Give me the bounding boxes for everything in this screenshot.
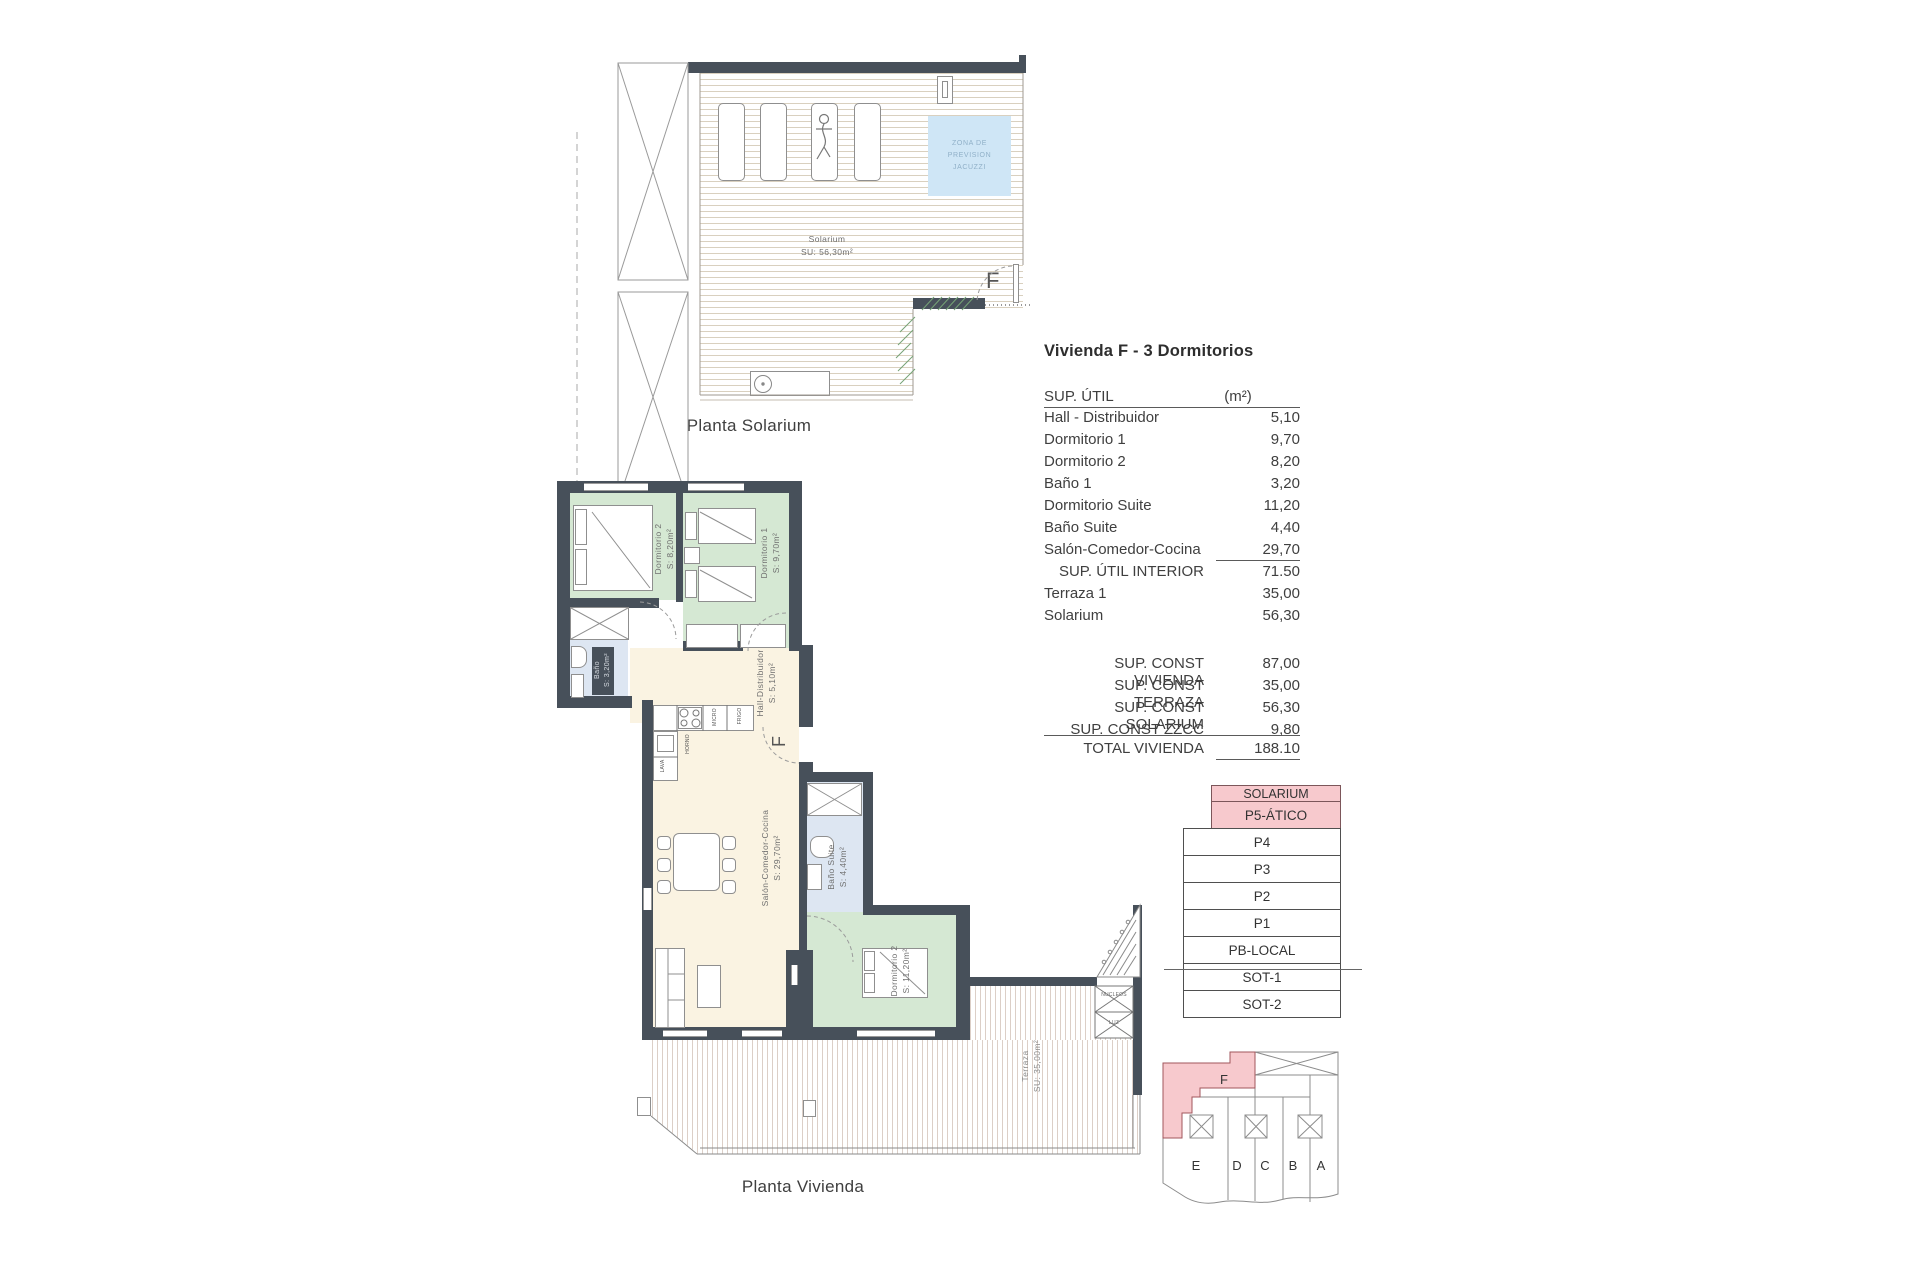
key-plan-letter-c: C — [1260, 1158, 1269, 1173]
room-area: S: 29,70m² — [771, 835, 783, 881]
table-row: Solarium56,30 — [1044, 607, 1300, 627]
stack-row-solarium: SOLARIUM — [1211, 785, 1341, 802]
table-row: Terraza 135,00 — [1044, 585, 1300, 605]
row-label: SUP. CONST ZZCC — [1044, 721, 1216, 741]
totals-rule — [1044, 735, 1300, 736]
key-plan-letter-e: E — [1192, 1158, 1201, 1173]
label-bano-suite: Baño Suite S: 4,40m² — [824, 812, 850, 922]
room-area: SU: 35,00m² — [1031, 1040, 1043, 1092]
stack-row-p3: P3 — [1183, 855, 1341, 883]
area-table: Vivienda F - 3 Dormitorios SUP. ÚTIL (m²… — [1044, 342, 1300, 782]
table-row: Dormitorio Suite11,20 — [1044, 497, 1300, 517]
row-value: 8,20 — [1216, 453, 1300, 473]
room-name: Baño Suite — [825, 844, 837, 890]
appliance-label: HORNO — [685, 734, 692, 754]
table-row-const: SUP. CONST SOLARIUM56,30 — [1044, 699, 1300, 719]
room-area: S: 9,70m² — [770, 533, 782, 573]
row-label: Baño 1 — [1044, 475, 1216, 495]
label-luz: LUZ — [1097, 1020, 1131, 1026]
key-plan-letter-b: B — [1289, 1158, 1298, 1173]
core-label: LUZ — [1109, 1020, 1119, 1026]
room-name: Terraza — [1019, 1050, 1031, 1081]
row-value: 56,30 — [1216, 699, 1300, 719]
label-dormitorio2: Dormitorio 2 S: 8,20m² — [651, 494, 677, 604]
row-value: 87,00 — [1216, 655, 1300, 675]
table-row-const: SUP. CONST VIVIENDA87,00 — [1044, 655, 1300, 675]
room-name: Dormitorio 1 — [758, 527, 770, 578]
row-value: 3,20 — [1216, 475, 1300, 495]
row-label: Dormitorio 2 — [1044, 453, 1216, 473]
room-name: Hall-Distribuidor — [754, 649, 766, 716]
key-plan-lift-cores — [1190, 1115, 1322, 1138]
stack-row-label: PB-LOCAL — [1229, 943, 1296, 958]
room-area: S: 3,20m² — [603, 653, 613, 687]
terraza-outline — [651, 1095, 1140, 1154]
stack-row-sot2: SOT-2 — [1183, 990, 1341, 1018]
key-plan-letter-d: D — [1232, 1158, 1241, 1173]
row-value: 9,80 — [1216, 721, 1300, 741]
table-row-subtotal: SUP. ÚTIL INTERIOR71.50 — [1044, 563, 1300, 583]
row-label: SUP. CONST TERRAZA — [1044, 677, 1216, 697]
stack-row-label: SOT-1 — [1242, 970, 1281, 985]
table-row: Baño Suite4,40 — [1044, 519, 1300, 539]
stack-row-label: P1 — [1254, 916, 1271, 931]
label-frigo: FRIGO — [736, 696, 746, 736]
vivienda-caption: Planta Vivienda — [703, 1177, 903, 1197]
row-label: TOTAL VIVIENDA — [1044, 740, 1216, 760]
ground-line — [1164, 969, 1362, 970]
appliance-label: LAVA — [660, 760, 667, 773]
appliance-label: MICRO — [712, 708, 719, 726]
room-name: Dormitorio 2 — [888, 945, 900, 996]
table-row: Dormitorio 19,70 — [1044, 431, 1300, 451]
row-label: Dormitorio 1 — [1044, 431, 1216, 451]
table-row-total: TOTAL VIVIENDA188.10 — [1044, 740, 1300, 760]
header-unit: (m²) — [1216, 388, 1260, 405]
key-plan-letter-a: A — [1317, 1158, 1326, 1173]
area-table-title: Vivienda F - 3 Dormitorios — [1044, 342, 1253, 361]
table-row-const: SUP. CONST ZZCC9,80 — [1044, 721, 1300, 741]
sofa-cushion-lines — [668, 949, 685, 1027]
row-value: 11,20 — [1216, 497, 1300, 517]
room-area: S: 11,20m² — [900, 949, 912, 994]
row-label: Solarium — [1044, 607, 1216, 627]
stack-row-p2: P2 — [1183, 882, 1341, 910]
stack-row-p1: P1 — [1183, 909, 1341, 937]
room-name: Salón-Comedor-Cocina — [759, 810, 771, 907]
stairs-triangle — [1097, 905, 1140, 977]
label-hall: Hall-Distribuidor S: 5,10m² — [753, 628, 779, 738]
row-label: SUP. CONST SOLARIUM — [1044, 699, 1216, 719]
row-value: 4,40 — [1216, 519, 1300, 539]
room-name: Baño — [593, 661, 603, 679]
label-salon: Salón-Comedor-Cocina S: 29,70m² — [758, 793, 784, 923]
table-row: Salón-Comedor-Cocina29,70 — [1044, 541, 1300, 561]
floor-stack-diagram: SOLARIUM P5-ÁTICO P4 P3 P2 P1 PB-LOCAL S… — [1183, 785, 1343, 1018]
stack-row-pb: PB-LOCAL — [1183, 936, 1341, 964]
row-value: 29,70 — [1216, 541, 1300, 561]
plan-sheet: ZONA DE PREVISION JACUZZI Solarium SU: 5… — [0, 0, 1920, 1280]
label-dormitorio-suite: Dormitorio 2 S: 11,20m² — [887, 916, 913, 1026]
header-label: SUP. ÚTIL — [1044, 388, 1114, 405]
room-area: S: 4,40m² — [837, 847, 849, 887]
label-nucleos: NUCLEOS — [1097, 992, 1131, 998]
stack-row-label: P3 — [1254, 862, 1271, 877]
stack-row-p5: P5-ÁTICO — [1211, 801, 1341, 829]
row-value: 188.10 — [1216, 740, 1300, 760]
row-value: 35,00 — [1216, 677, 1300, 697]
stack-row-label: P5-ÁTICO — [1245, 808, 1307, 823]
stack-row-label: SOLARIUM — [1243, 787, 1308, 801]
table-row: Baño 13,20 — [1044, 475, 1300, 495]
row-value: 56,30 — [1216, 607, 1300, 627]
key-plan-letter-f: F — [1220, 1072, 1228, 1087]
label-bano: Baño S: 3,20m² — [591, 625, 615, 715]
table-row: Hall - Distribuidor5,10 — [1044, 409, 1300, 429]
row-value: 5,10 — [1216, 409, 1300, 429]
row-label: Hall - Distribuidor — [1044, 409, 1216, 429]
row-label: Dormitorio Suite — [1044, 497, 1216, 517]
core-label: NUCLEOS — [1101, 992, 1127, 998]
stack-row-label: P4 — [1254, 835, 1271, 850]
label-horno: HORNO — [684, 724, 694, 764]
row-value: 71.50 — [1216, 563, 1300, 583]
table-row: Dormitorio 28,20 — [1044, 453, 1300, 473]
table-row-const: SUP. CONST TERRAZA35,00 — [1044, 677, 1300, 697]
label-lava: LAVA — [659, 746, 669, 786]
entrance-door-letter: F — [769, 736, 790, 747]
row-value: 35,00 — [1216, 585, 1300, 605]
area-table-header: SUP. ÚTIL (m²) — [1044, 388, 1300, 406]
stack-row-label: P2 — [1254, 889, 1271, 904]
room-name: Dormitorio 2 — [652, 523, 664, 574]
door-swing-arcs — [640, 602, 853, 962]
header-rule — [1044, 407, 1300, 408]
row-label: Baño Suite — [1044, 519, 1216, 539]
key-plan: F E D C B A — [1160, 1048, 1350, 1220]
row-label: SUP. CONST VIVIENDA — [1044, 655, 1216, 675]
row-label: Terraza 1 — [1044, 585, 1216, 605]
label-terraza: Terraza SU: 35,00m² — [1018, 1011, 1044, 1121]
label-micro: MICRO — [711, 697, 721, 737]
appliance-label: FRIGO — [737, 708, 744, 725]
label-dormitorio1: Dormitorio 1 S: 9,70m² — [757, 498, 783, 608]
room-area: S: 8,20m² — [664, 529, 676, 569]
row-label: SUP. ÚTIL INTERIOR — [1044, 563, 1216, 583]
stack-row-sot1: SOT-1 — [1183, 963, 1341, 991]
stack-row-label: SOT-2 — [1242, 997, 1281, 1012]
room-area: S: 5,10m² — [766, 663, 778, 703]
row-value: 9,70 — [1216, 431, 1300, 451]
stack-row-p4: P4 — [1183, 828, 1341, 856]
row-label: Salón-Comedor-Cocina — [1044, 541, 1216, 561]
